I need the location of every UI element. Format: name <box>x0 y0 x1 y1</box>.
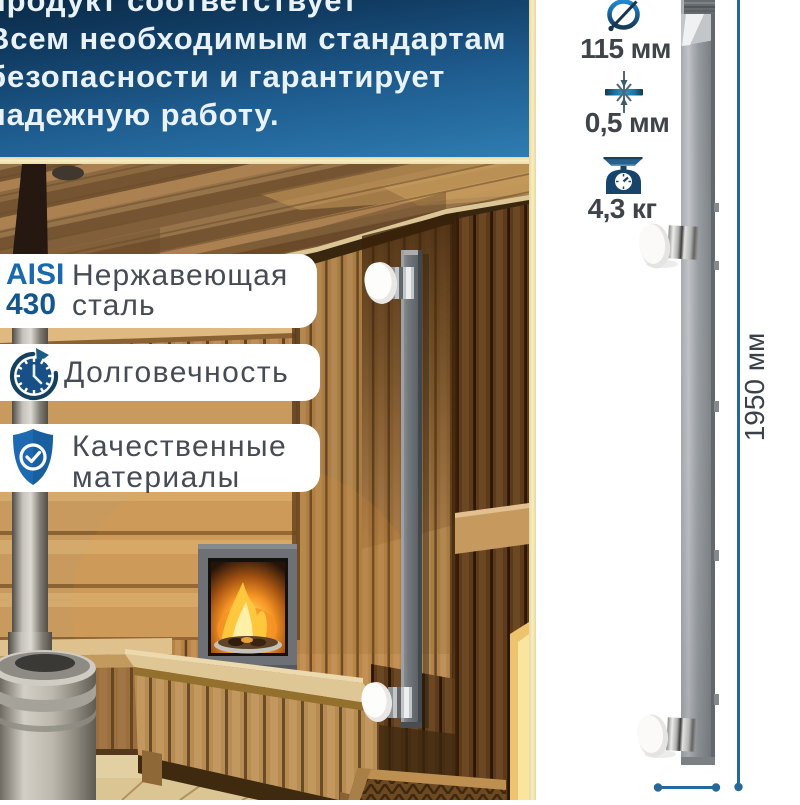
svg-text:115 мм: 115 мм <box>580 33 671 64</box>
svg-text:1950 мм: 1950 мм <box>739 333 770 442</box>
svg-text:4,3 кг: 4,3 кг <box>588 193 657 224</box>
svg-text:0,5 мм: 0,5 мм <box>585 107 670 138</box>
